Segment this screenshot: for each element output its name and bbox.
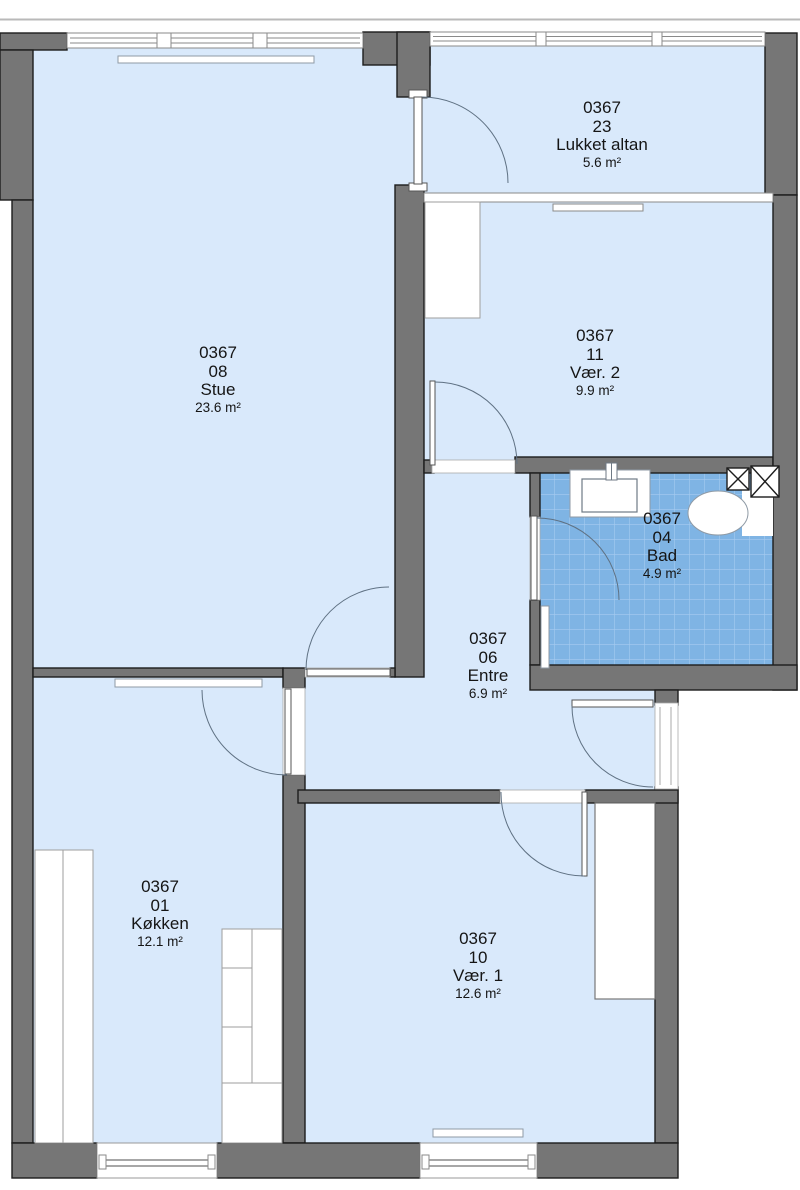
floor-plan: 0367 08 Stue 23.6 m² 0367 23 Lukket alta… bbox=[0, 0, 800, 1190]
radiator-bad bbox=[541, 606, 549, 668]
counter-koekken-left bbox=[35, 850, 93, 1143]
closet-vaer2 bbox=[425, 202, 480, 318]
sink-bad bbox=[570, 463, 650, 517]
shaft-large-icon bbox=[751, 466, 779, 497]
window-vaer1-bottom bbox=[420, 1143, 537, 1178]
counter-koekken-right bbox=[222, 929, 282, 1143]
window-koekken-bottom bbox=[97, 1143, 217, 1178]
radiator-koekken bbox=[115, 679, 262, 687]
radiator-stue bbox=[118, 56, 314, 63]
shaft-small-icon bbox=[727, 468, 749, 490]
window-altan-top bbox=[430, 32, 765, 46]
wardrobe-vaer1 bbox=[595, 803, 655, 999]
window-stue-top bbox=[67, 33, 363, 48]
radiator-vaer1 bbox=[433, 1129, 523, 1137]
floor-plan-drawing bbox=[0, 0, 800, 1190]
